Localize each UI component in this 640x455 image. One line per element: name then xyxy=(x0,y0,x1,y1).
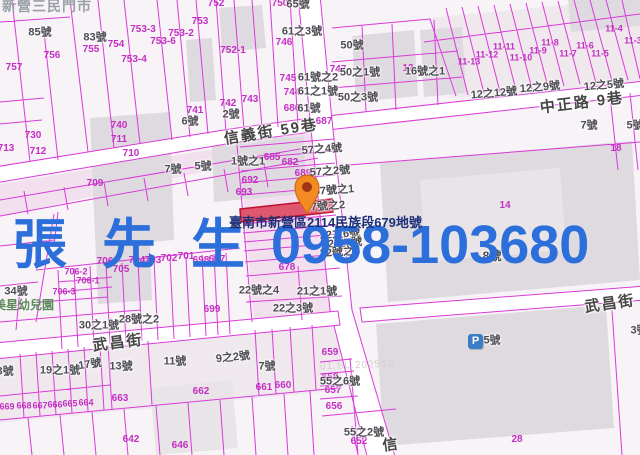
house-number-label: 19之1號 xyxy=(40,366,80,377)
house-number-label: 83號 xyxy=(83,33,106,44)
parcel-number-label: 692 xyxy=(242,176,259,186)
parcel-number-label: 745 xyxy=(280,74,297,84)
parcel-number-label: 646 xyxy=(172,441,189,451)
parcel-number-label: 754 xyxy=(108,40,125,50)
parcel-number-label: 711 xyxy=(111,135,127,145)
house-number-label: 34號 xyxy=(4,287,27,298)
house-number-label: 2號 xyxy=(222,110,239,121)
parcel-number-label: 660 xyxy=(275,381,292,391)
street-name-label: 武昌街 xyxy=(584,293,637,315)
parcel-number-label: 709 xyxy=(87,179,104,189)
house-number-label: 30之1號 xyxy=(79,321,119,332)
house-number-label: 5號 xyxy=(483,336,500,347)
house-number-label: 61號之2 xyxy=(298,73,338,84)
house-number-label: 61號 xyxy=(297,104,320,115)
house-number-label: 61之1號 xyxy=(298,87,338,98)
house-number-label: 85號 xyxy=(28,28,51,39)
house-number-label: 11號 xyxy=(164,357,187,368)
house-number-label: 61之3號 xyxy=(282,27,322,38)
agent-name: 張 先 生 xyxy=(13,215,255,275)
house-number-label: 7號 xyxy=(164,165,181,176)
house-number-label: 12之12號 xyxy=(470,86,517,101)
parcel-number-label: 756 xyxy=(44,51,61,61)
parcel-number-label: 11-7 xyxy=(559,50,577,59)
house-number-label: 7號 xyxy=(580,121,597,132)
parcel-number-label: 11-3 xyxy=(624,37,640,46)
house-number-label: 13號 xyxy=(109,362,132,373)
parcel-number-label: 757 xyxy=(6,63,23,73)
parcel-number-label: 642 xyxy=(123,435,140,445)
parcel-address-overlay: 臺南市新營區2114民族段679地號 xyxy=(229,212,422,231)
cadastral-map-viewport[interactable]: 新營三民門市 美星幼兒園 01.SL.202510 752750753753-3… xyxy=(0,0,640,455)
parcel-number-label: 661 xyxy=(256,383,273,393)
parcel-number-label: 710 xyxy=(123,149,140,159)
parcel-number-label: 659 xyxy=(322,348,339,358)
parcel-number-label: 753-6 xyxy=(150,37,176,47)
street-name-label: 信 xyxy=(382,436,401,453)
house-number-label: 23號 xyxy=(0,367,14,378)
parcel-number-label: 11-4 xyxy=(605,25,623,34)
house-number-label: 22之3號 xyxy=(273,304,313,315)
location-pin-icon[interactable] xyxy=(292,173,322,215)
parcel-number-label: 18 xyxy=(610,144,621,154)
parcel-number-label: 11-9 xyxy=(529,47,547,56)
house-number-label: 57之4號 xyxy=(301,143,342,157)
house-number-label: 1號之1 xyxy=(231,157,265,168)
house-number-label: 50之3號 xyxy=(338,93,378,104)
house-number-label: 6號 xyxy=(181,117,198,128)
parcel-number-label: 753-3 xyxy=(130,25,156,35)
parcel-number-label: 11-11 xyxy=(493,43,515,52)
parcel-number-label: 712 xyxy=(30,147,47,157)
house-number-label: 9之2號 xyxy=(215,351,250,366)
parcel-number-label: 11-5 xyxy=(591,50,609,59)
street-name-label: 武昌街 xyxy=(92,332,144,353)
house-number-label: 7號 xyxy=(258,362,275,373)
parking-icon: P xyxy=(468,334,483,349)
house-number-label: 50之1號 xyxy=(340,68,380,79)
house-number-label: 3號 xyxy=(630,326,640,337)
house-number-label: 28號之2 xyxy=(119,315,159,326)
parcel-number-label: 668 xyxy=(16,402,31,411)
house-number-label: 55之2號 xyxy=(344,428,384,439)
parcel-number-label: 706-3 xyxy=(52,288,75,297)
parcel-number-label: 663 xyxy=(112,394,129,404)
parcel-number-label: 730 xyxy=(25,131,42,141)
parcel-number-label: 652 xyxy=(351,437,368,447)
parcel-number-label: 11-12 xyxy=(476,51,499,60)
street-name-label: 中正路 9巷 xyxy=(539,90,625,115)
parcel-number-label: 669 xyxy=(0,403,15,412)
house-number-label: 50號 xyxy=(340,41,363,52)
house-number-label: 65號 xyxy=(286,0,309,11)
parcel-number-label: 753-4 xyxy=(121,55,147,65)
house-number-label: 55之6號 xyxy=(320,377,360,388)
parcel-number-label: 665 xyxy=(62,400,77,409)
parcel-number-label: 662 xyxy=(193,387,210,397)
parcel-number-label: 685 xyxy=(264,153,281,163)
parcel-number-label: 752 xyxy=(208,0,225,9)
house-number-label: 22號之4 xyxy=(239,286,279,297)
parcel-number-label: 667 xyxy=(32,402,47,411)
house-number-label: 5號 xyxy=(626,121,640,132)
parcel-number-label: 753 xyxy=(192,17,209,27)
parcel-number-label: 682 xyxy=(282,158,299,168)
house-number-label: 16號之1 xyxy=(405,67,445,78)
parcel-number-label: 11-8 xyxy=(541,39,559,48)
house-number-label: 17號 xyxy=(78,358,103,372)
parcel-number-label: 693 xyxy=(236,188,253,198)
parcel-number-label: 664 xyxy=(78,399,93,408)
parcel-number-label: 755 xyxy=(83,45,100,55)
parcel-number-label: 743 xyxy=(242,95,259,105)
parcel-number-label: 656 xyxy=(326,402,343,412)
house-number-label: 5號 xyxy=(194,162,211,173)
house-number-label: 12之9號 xyxy=(519,81,560,95)
parcel-number-label: 713 xyxy=(0,144,14,154)
parcel-number-label: 699 xyxy=(204,305,221,315)
parcel-number-label: 740 xyxy=(111,121,128,131)
parcel-number-label: 746 xyxy=(276,38,293,48)
parcel-number-label: 742 xyxy=(220,99,237,109)
parcel-number-label: 741 xyxy=(187,106,204,116)
parcel-number-label: 657 xyxy=(325,386,342,396)
parcel-number-label: 28 xyxy=(511,435,522,445)
parcel-number-label: 666 xyxy=(47,401,62,410)
street-name-label: 信義街 59巷 xyxy=(223,117,319,147)
parcel-number-label: 752-1 xyxy=(220,46,246,56)
house-number-label: 21之1號 xyxy=(297,287,337,298)
